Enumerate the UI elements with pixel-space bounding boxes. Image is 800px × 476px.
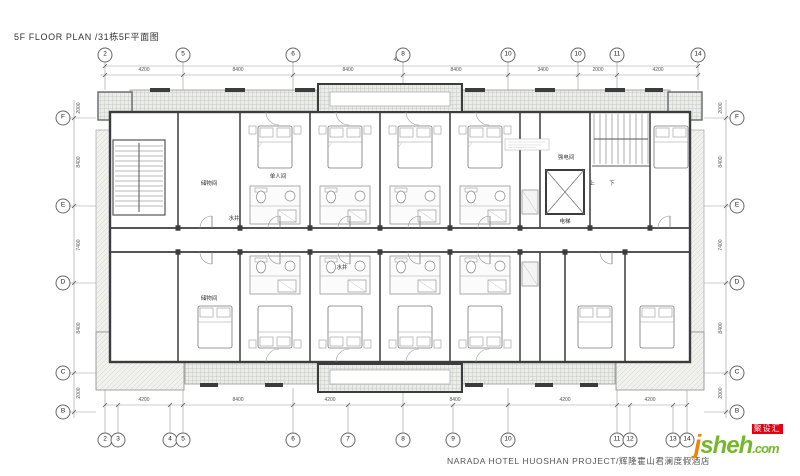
- watermark-logo-tld: .com: [752, 441, 778, 456]
- dimension: 2000: [718, 387, 724, 398]
- dimension: 3400: [537, 67, 548, 73]
- grid-bubble: 5: [176, 433, 191, 448]
- dimension: 4200: [138, 67, 149, 73]
- room-label-single: 单人间: [270, 172, 287, 180]
- grid-bubble: 9: [446, 433, 461, 448]
- dimension: 7400: [76, 239, 82, 250]
- grid-bubble: 3: [111, 433, 126, 448]
- watermark: jsheh.com 聚设汇: [694, 431, 779, 458]
- room-label-shaft-bottom: 水井: [336, 263, 347, 271]
- dimension: 4200: [138, 397, 149, 403]
- watermark-badge: 聚设汇: [752, 424, 783, 434]
- dimension: 4200: [644, 397, 655, 403]
- grid-bubble: 5: [176, 48, 191, 63]
- grid-bubble: C: [730, 366, 745, 381]
- grid-bubble: 6: [286, 433, 301, 448]
- grid-bubble: E: [56, 199, 71, 214]
- dimension: 8400: [718, 322, 724, 333]
- grid-bubble: 10: [501, 48, 516, 63]
- room-label-storage-top: 储物间: [201, 179, 218, 187]
- dimension: 4200: [652, 67, 663, 73]
- grid-bubble: 8: [396, 433, 411, 448]
- grid-bubble: 8: [396, 48, 411, 63]
- dimension: 4200: [324, 397, 335, 403]
- dimension: 8400: [232, 397, 243, 403]
- dimension: 8400: [342, 67, 353, 73]
- dimension: 8400: [76, 156, 82, 167]
- grid-bubble: D: [730, 276, 745, 291]
- dimension: 8400: [76, 322, 82, 333]
- stair-down-label: 下: [609, 179, 615, 187]
- grid-bubble: 7: [341, 433, 356, 448]
- floor-plan-page: { "title": "5F FLOOR PLAN /31栋5F平面图", "f…: [0, 0, 800, 476]
- grid-bubble: 14: [680, 433, 695, 448]
- grid-bubble: 2: [98, 48, 113, 63]
- dimension: 8400: [450, 67, 461, 73]
- grid-bubble: 12: [623, 433, 638, 448]
- dimension: 4200: [559, 397, 570, 403]
- watermark-logo: jsheh.com: [694, 440, 779, 457]
- grid-bubble: 10: [501, 433, 516, 448]
- room-label-shaft-top: 水井: [228, 214, 239, 222]
- grid-bubble: F: [730, 111, 745, 126]
- grid-bubble: D: [56, 276, 71, 291]
- grid-bubble: C: [56, 366, 71, 381]
- dimension: 2000: [592, 67, 603, 73]
- watermark-logo-rest: sheh: [700, 432, 752, 459]
- room-label-elevator: 电梯: [559, 217, 570, 225]
- dimension: 8400: [232, 67, 243, 73]
- grid-bubble: E: [730, 199, 745, 214]
- room-label-storage-bottom: 储物间: [201, 294, 218, 302]
- dimension: 2000: [718, 102, 724, 113]
- grid-bubble: 10: [571, 48, 586, 63]
- dimension: 8400: [718, 156, 724, 167]
- dimension: 7400: [718, 239, 724, 250]
- dimension: 8400: [449, 397, 460, 403]
- grid-bubble: B: [730, 405, 745, 420]
- note-box: [505, 139, 549, 150]
- grid-bubble: 11: [610, 48, 625, 63]
- grid-bubble: 6: [286, 48, 301, 63]
- dimension: 2000: [76, 102, 82, 113]
- dimension: 2000: [76, 387, 82, 398]
- room-label-elec: 强电间: [558, 153, 575, 161]
- grid-bubble: 13: [666, 433, 681, 448]
- grid-bubble: 14: [691, 48, 706, 63]
- stair-up-label: 上: [589, 179, 595, 187]
- grid-bubble: F: [56, 111, 71, 126]
- floor-plan-drawing: [0, 0, 800, 476]
- elevator-shaft: [546, 170, 584, 214]
- grid-bubble: B: [56, 405, 71, 420]
